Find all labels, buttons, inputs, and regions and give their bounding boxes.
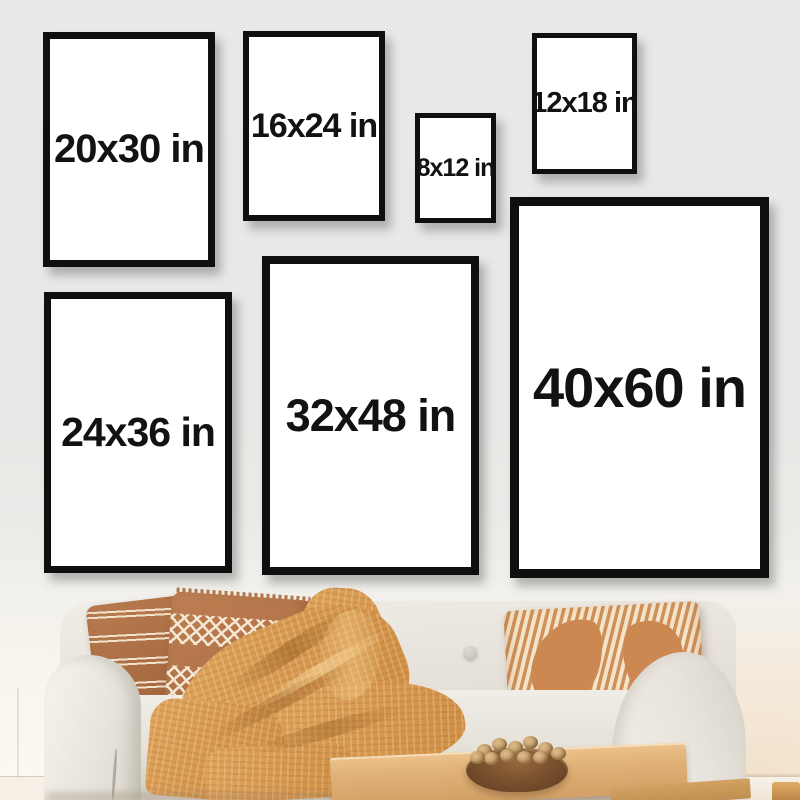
nut (470, 751, 485, 764)
poster-size-label: 40x60 in (533, 355, 746, 420)
poster-size-label: 8x12 in (417, 154, 495, 183)
poster-size-label: 16x24 in (251, 107, 377, 146)
poster-frame-16x24: 16x24 in (243, 31, 385, 221)
poster-frame-8x12: 8x12 in (415, 113, 496, 223)
nut (500, 749, 515, 762)
nut (523, 736, 538, 749)
sofa-button-tuft (464, 646, 477, 659)
poster-frame-32x48: 32x48 in (262, 256, 479, 575)
poster-size-label: 20x30 in (54, 127, 204, 172)
nut (551, 747, 566, 760)
poster-size-label: 12x18 in (531, 87, 637, 120)
nut (517, 751, 532, 764)
wooden-side-table (772, 782, 800, 800)
nut (484, 752, 499, 765)
nut (533, 751, 548, 764)
poster-frame-24x36: 24x36 in (44, 292, 232, 573)
poster-frame-20x30: 20x30 in (43, 32, 215, 267)
poster-frame-12x18: 12x18 in (532, 33, 637, 174)
sofa-arm-left (44, 655, 141, 800)
poster-frame-40x60: 40x60 in (510, 197, 769, 578)
wall-panel-line (17, 688, 19, 778)
poster-size-label: 24x36 in (61, 409, 215, 456)
poster-size-label: 32x48 in (286, 390, 456, 442)
living-room-scene: 20x30 in 16x24 in 8x12 in 12x18 in 24x36… (0, 0, 800, 800)
